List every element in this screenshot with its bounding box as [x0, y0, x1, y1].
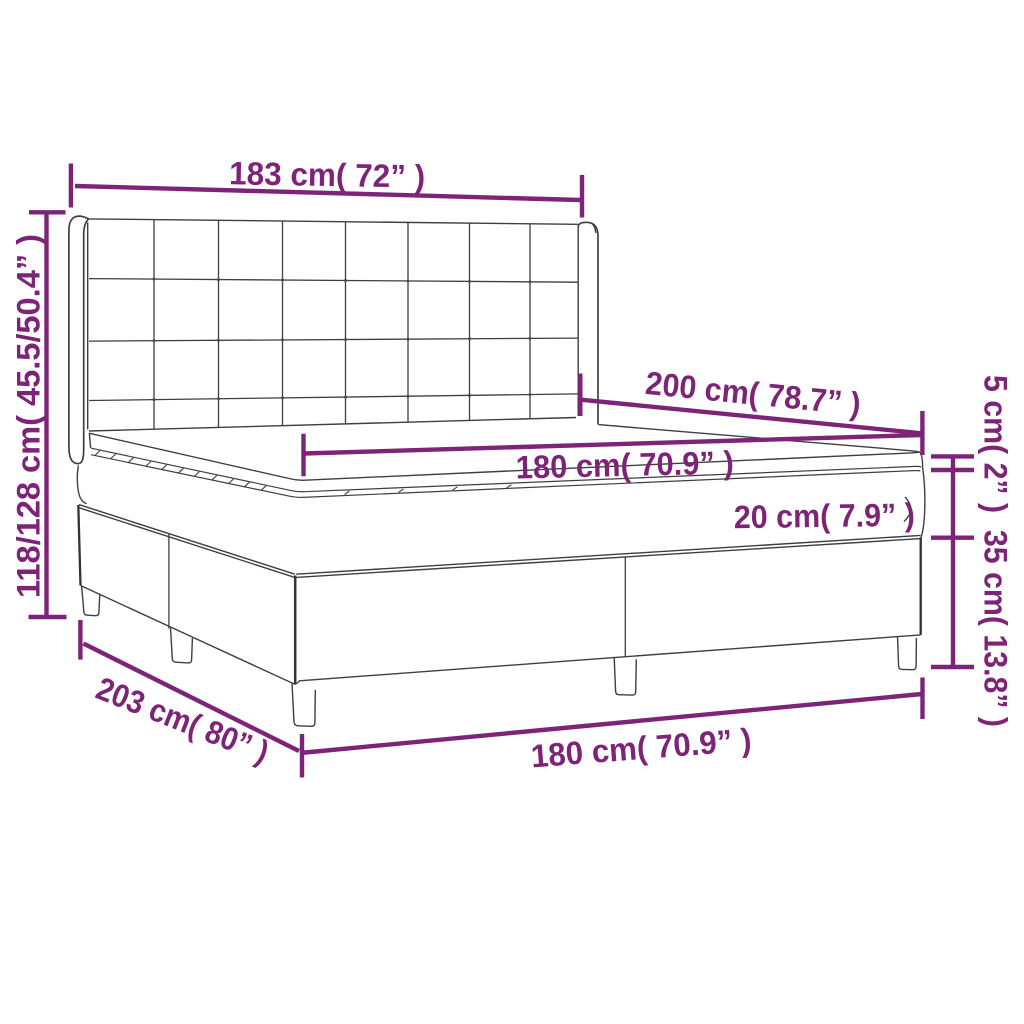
svg-text:183 cm( 72” ): 183 cm( 72” ) — [229, 155, 426, 194]
svg-text:180 cm( 70.9” ): 180 cm( 70.9” ) — [515, 445, 734, 486]
svg-text:5 cm( 2” ) 35 cm( 13.8” ): 5 cm( 2” ) 35 cm( 13.8” ) — [978, 375, 1014, 727]
svg-text:20 cm( 7.9” ): 20 cm( 7.9” ) — [734, 497, 915, 536]
svg-text:118/128 cm( 45.5/50.4” ): 118/128 cm( 45.5/50.4” ) — [11, 234, 47, 598]
